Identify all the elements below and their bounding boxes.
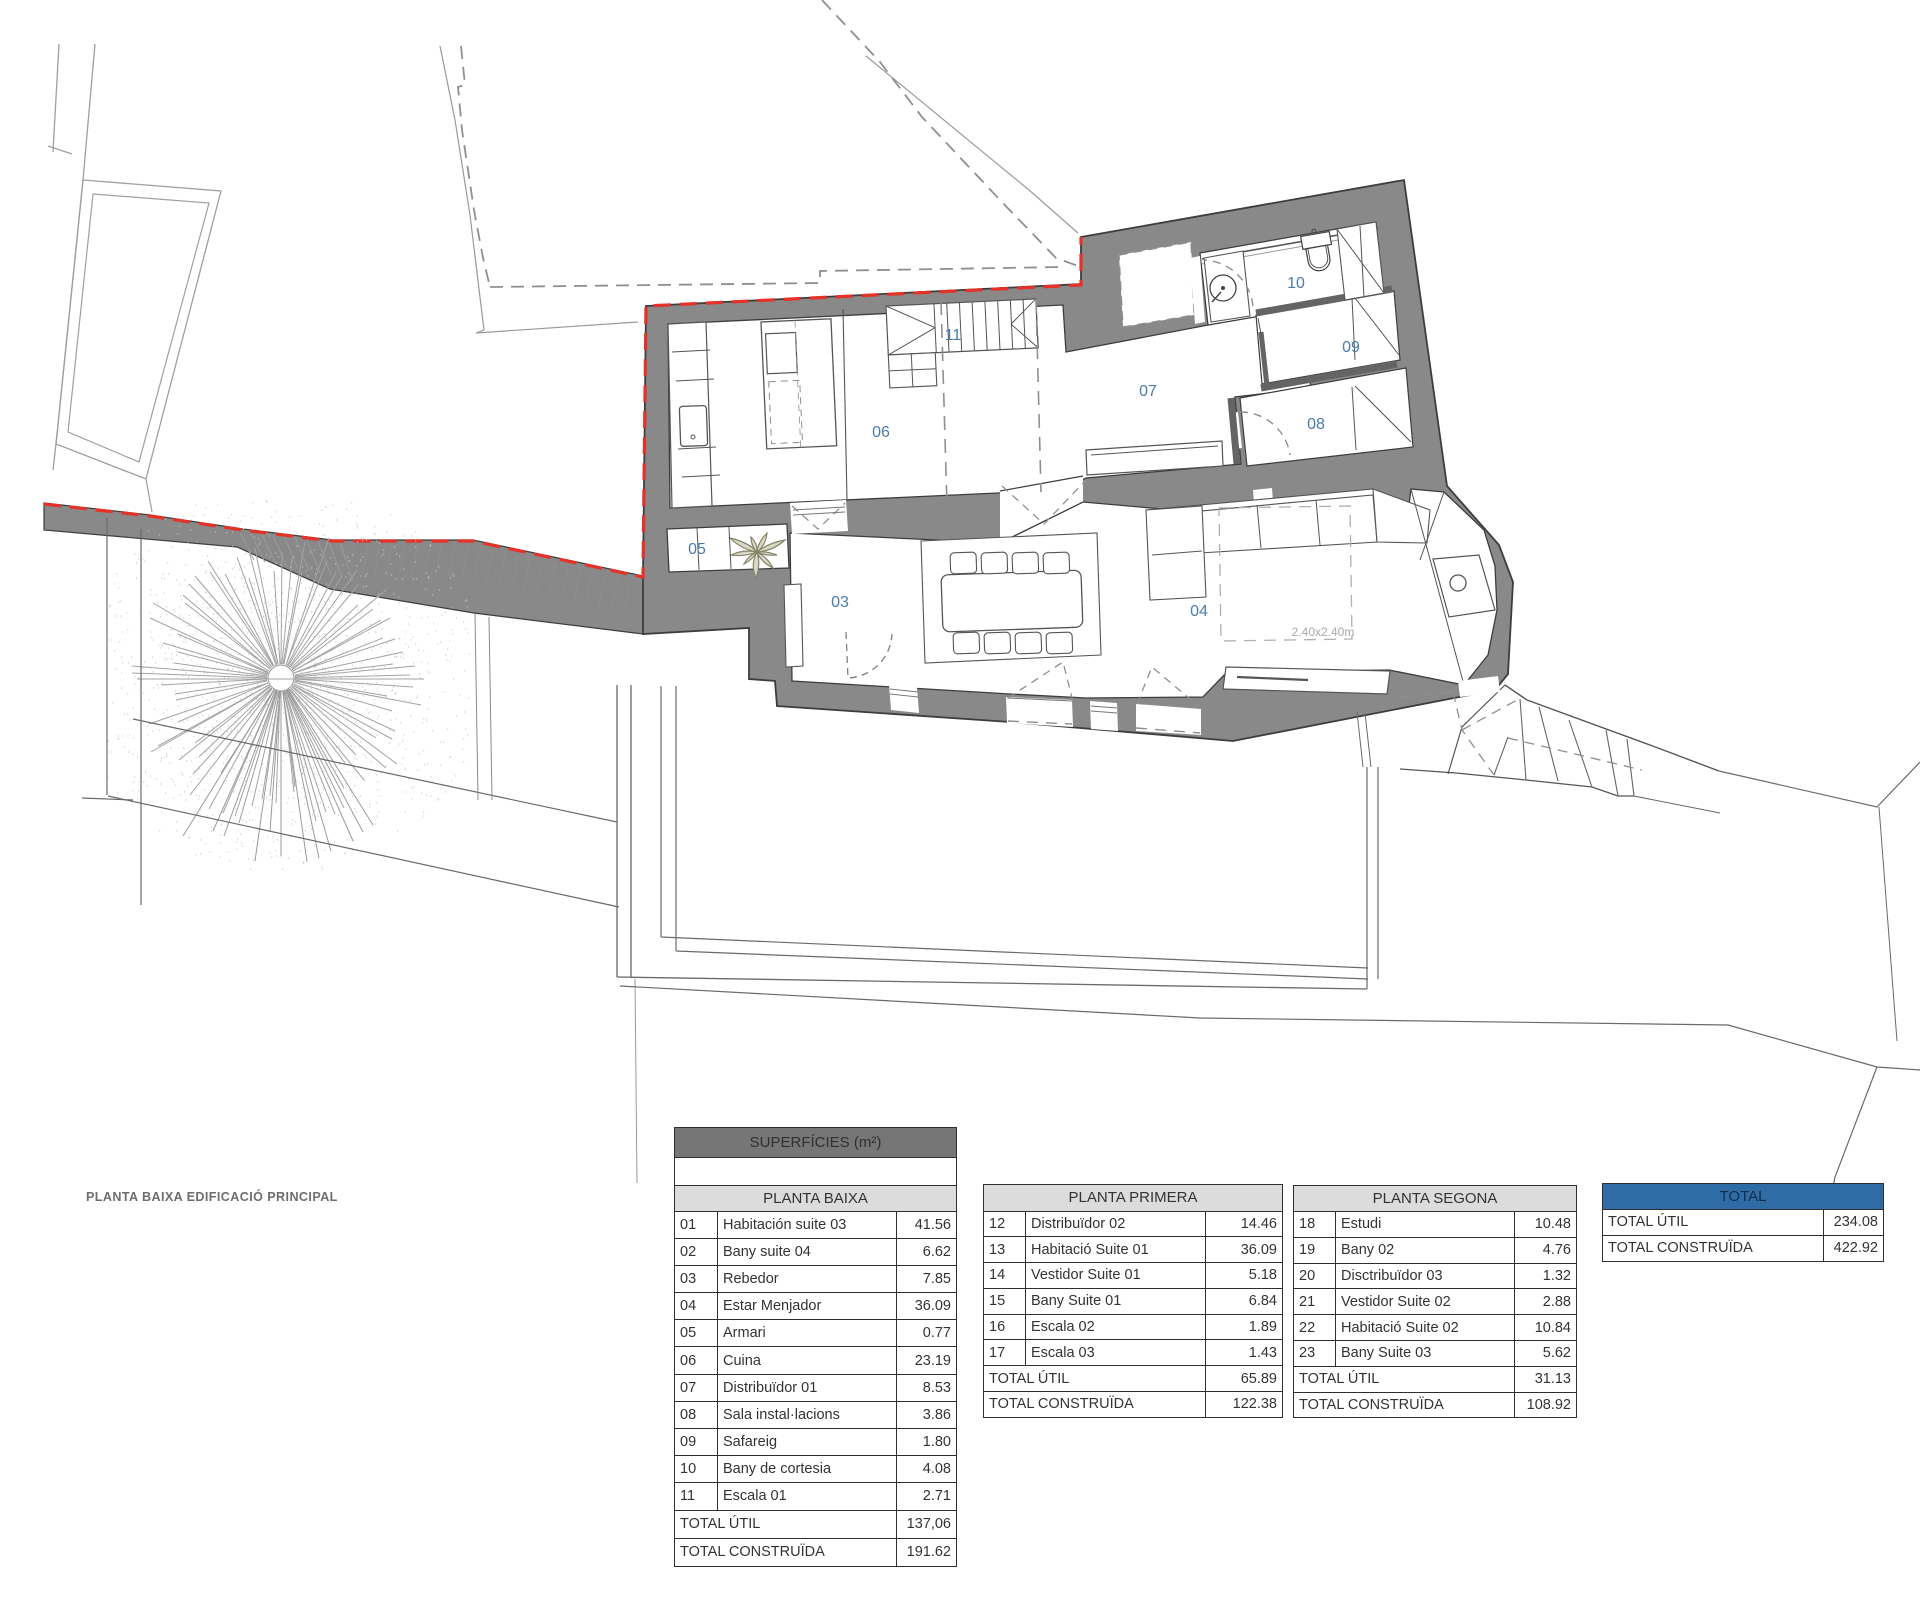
svg-text:07: 07 — [1139, 383, 1157, 400]
svg-text:06: 06 — [872, 424, 890, 441]
svg-text:11: 11 — [945, 327, 962, 344]
svg-text:05: 05 — [688, 541, 706, 558]
svg-text:03: 03 — [831, 594, 849, 611]
svg-text:09: 09 — [1342, 339, 1360, 356]
svg-text:2.40x2.40m: 2.40x2.40m — [1292, 625, 1355, 639]
svg-text:04: 04 — [1190, 603, 1208, 620]
svg-text:10: 10 — [1287, 275, 1305, 292]
svg-text:08: 08 — [1307, 416, 1325, 433]
